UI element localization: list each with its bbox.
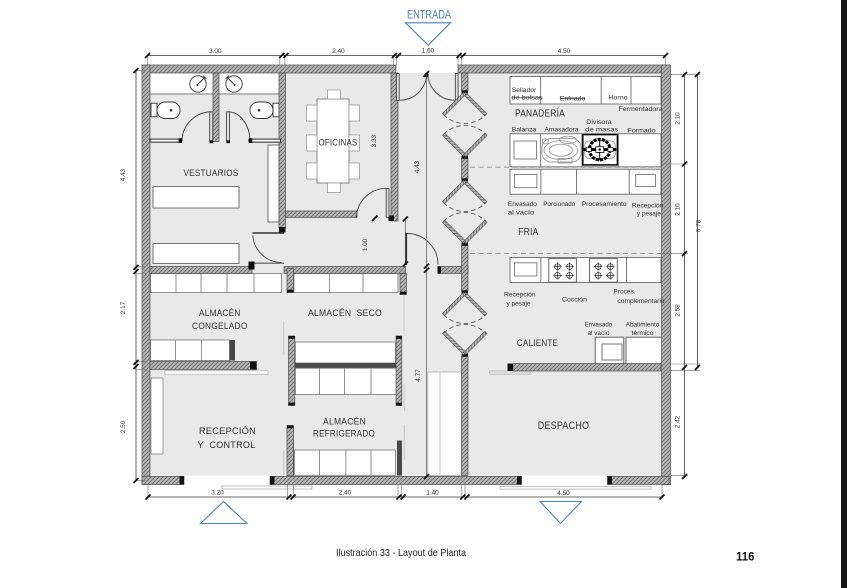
svg-text:ALMACÉN SECO: ALMACÉN SECO [308, 308, 382, 319]
svg-text:Amasadora: Amasadora [545, 126, 579, 133]
svg-text:Recepción: Recepción [504, 292, 536, 299]
svg-text:PANADERÍA: PANADERÍA [515, 107, 565, 120]
svg-text:Ilustración 33 - Layout de Pla: Ilustración 33 - Layout de Planta [336, 548, 467, 559]
svg-text:2.10: 2.10 [674, 203, 681, 216]
svg-text:de bolsas: de bolsas [512, 95, 544, 102]
svg-text:Recepción: Recepción [632, 203, 664, 210]
svg-text:2.10: 2.10 [674, 112, 681, 125]
svg-text:6.78: 6.78 [696, 219, 703, 232]
svg-text:116: 116 [736, 552, 755, 564]
svg-text:1.00: 1.00 [362, 238, 369, 251]
svg-text:Procesamiento: Procesamiento [582, 201, 627, 208]
svg-text:4.43: 4.43 [414, 160, 421, 173]
svg-text:3.20: 3.20 [211, 490, 224, 497]
svg-text:3.00: 3.00 [209, 48, 222, 55]
svg-text:2.42: 2.42 [674, 415, 681, 428]
svg-text:Fermentadora: Fermentadora [619, 106, 663, 113]
svg-text:Envasado: Envasado [585, 322, 613, 329]
svg-text:Abatimiento: Abatimiento [626, 322, 660, 329]
svg-text:2.17: 2.17 [120, 301, 127, 314]
svg-text:REFRIGERADO: REFRIGERADO [313, 429, 375, 440]
svg-text:CALIENTE: CALIENTE [517, 338, 559, 349]
svg-text:4.50: 4.50 [558, 48, 571, 55]
svg-text:DESPACHO: DESPACHO [538, 420, 590, 432]
svg-text:Sellador: Sellador [512, 87, 537, 94]
svg-text:Cocción: Cocción [562, 297, 587, 304]
svg-text:CONGELADO: CONGELADO [192, 321, 248, 332]
svg-text:al vacío: al vacío [508, 210, 535, 217]
svg-text:4.43: 4.43 [120, 168, 127, 181]
svg-text:2.50: 2.50 [120, 420, 127, 433]
svg-text:ALMACÉN: ALMACÉN [323, 417, 366, 428]
svg-text:1.40: 1.40 [426, 490, 439, 497]
svg-text:y pesaje: y pesaje [507, 301, 531, 308]
svg-text:Envasado: Envasado [508, 201, 537, 208]
svg-text:Enfriado: Enfriado [560, 95, 586, 102]
svg-text:OFICINAS: OFICINAS [319, 138, 358, 149]
svg-text:Y CONTROL: Y CONTROL [198, 440, 256, 451]
svg-text:4.77: 4.77 [415, 369, 422, 382]
svg-text:ALMACÉN: ALMACÉN [199, 308, 241, 319]
svg-text:FRIA: FRIA [518, 226, 539, 238]
svg-text:térmico: térmico [632, 330, 654, 337]
svg-text:ENTRADA: ENTRADA [407, 8, 451, 22]
svg-text:VESTUARIOS: VESTUARIOS [184, 168, 239, 179]
svg-text:Balanza: Balanza [512, 126, 537, 133]
svg-text:1.60: 1.60 [422, 48, 435, 55]
svg-text:Proces.: Proces. [614, 289, 636, 296]
svg-text:3.33: 3.33 [371, 134, 378, 147]
svg-text:y pesaje: y pesaje [637, 211, 661, 218]
svg-text:2.40: 2.40 [339, 490, 352, 497]
svg-text:al vacío: al vacío [588, 330, 610, 337]
svg-text:Horno: Horno [609, 94, 628, 101]
svg-text:de masas: de masas [585, 126, 619, 133]
svg-text:2.58: 2.58 [674, 304, 681, 317]
svg-text:RECEPCIÓN: RECEPCIÓN [199, 426, 256, 437]
svg-text:Porcionado: Porcionado [543, 201, 575, 208]
svg-text:Formado: Formado [628, 127, 656, 134]
svg-text:complementario: complementario [618, 298, 665, 305]
svg-text:4.50: 4.50 [557, 490, 570, 497]
svg-text:2.40: 2.40 [332, 48, 345, 55]
svg-text:Divisora: Divisora [586, 119, 612, 126]
